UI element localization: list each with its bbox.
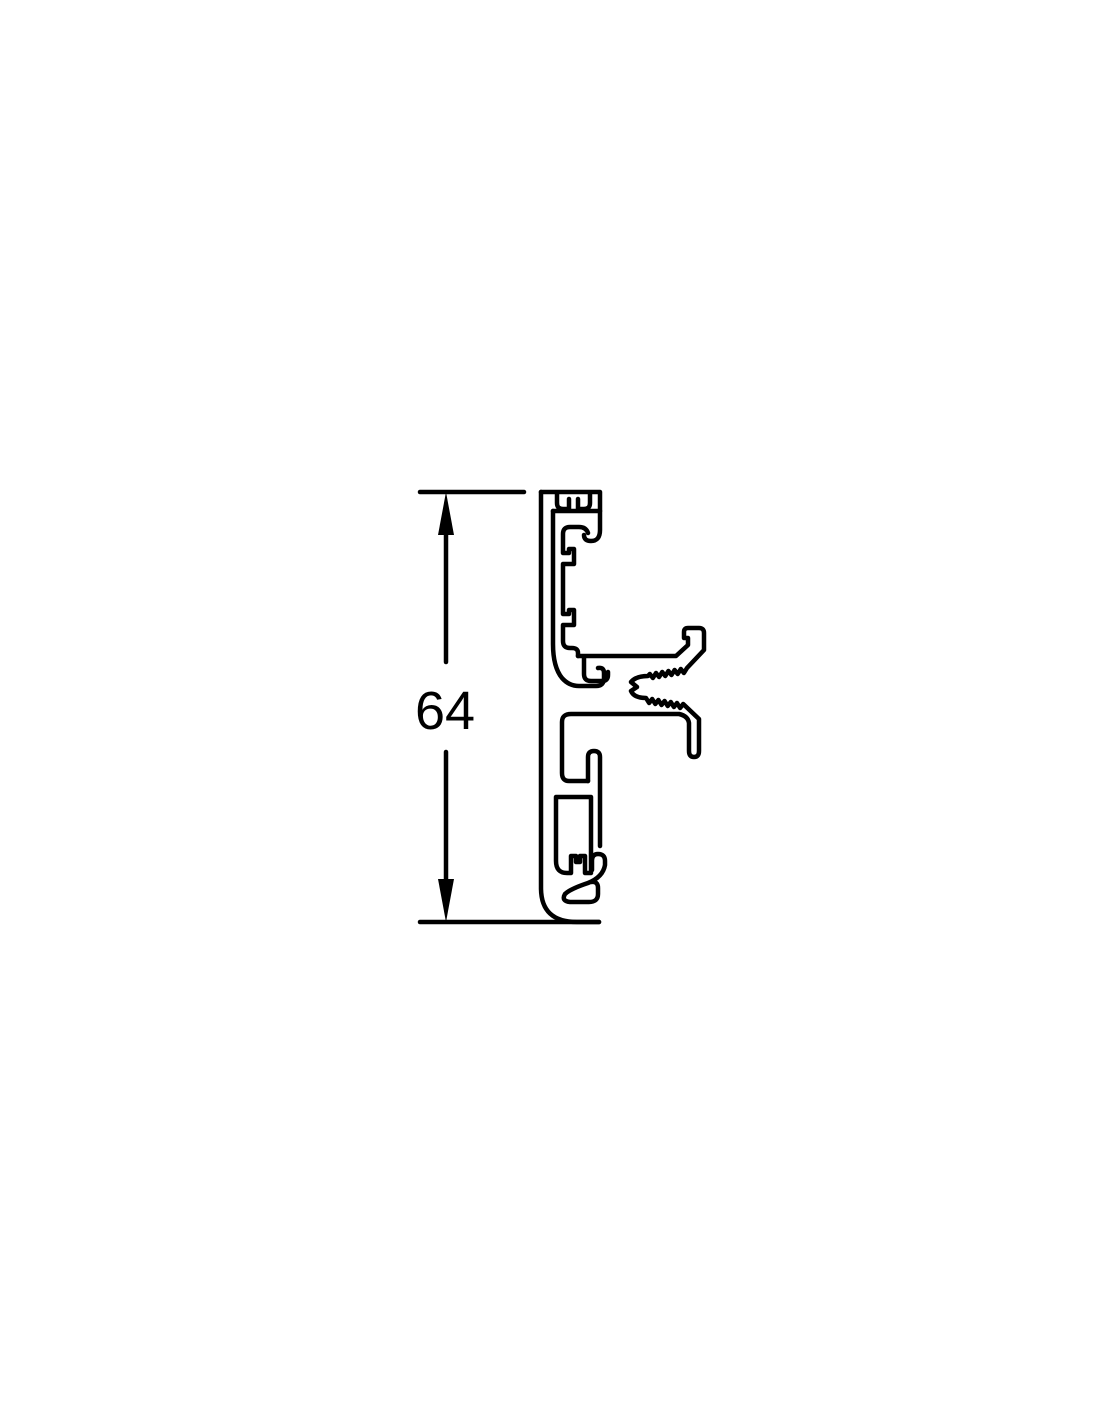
dimension-value: 64 (415, 681, 475, 741)
top-channel-right-hook (578, 494, 590, 509)
arrow-down-icon (438, 879, 454, 922)
top-channel-left-hook (557, 494, 569, 509)
arrow-up-icon (438, 492, 454, 535)
lower-pocket (556, 797, 591, 873)
upper-right-wall-hook (584, 511, 600, 541)
profile-group (541, 492, 704, 922)
drawing-page: 64 (0, 0, 1100, 1422)
clip-assembly (562, 628, 704, 781)
inner-wall-chain (563, 527, 588, 656)
profile-cross-section-drawing: 64 (0, 0, 1100, 1422)
